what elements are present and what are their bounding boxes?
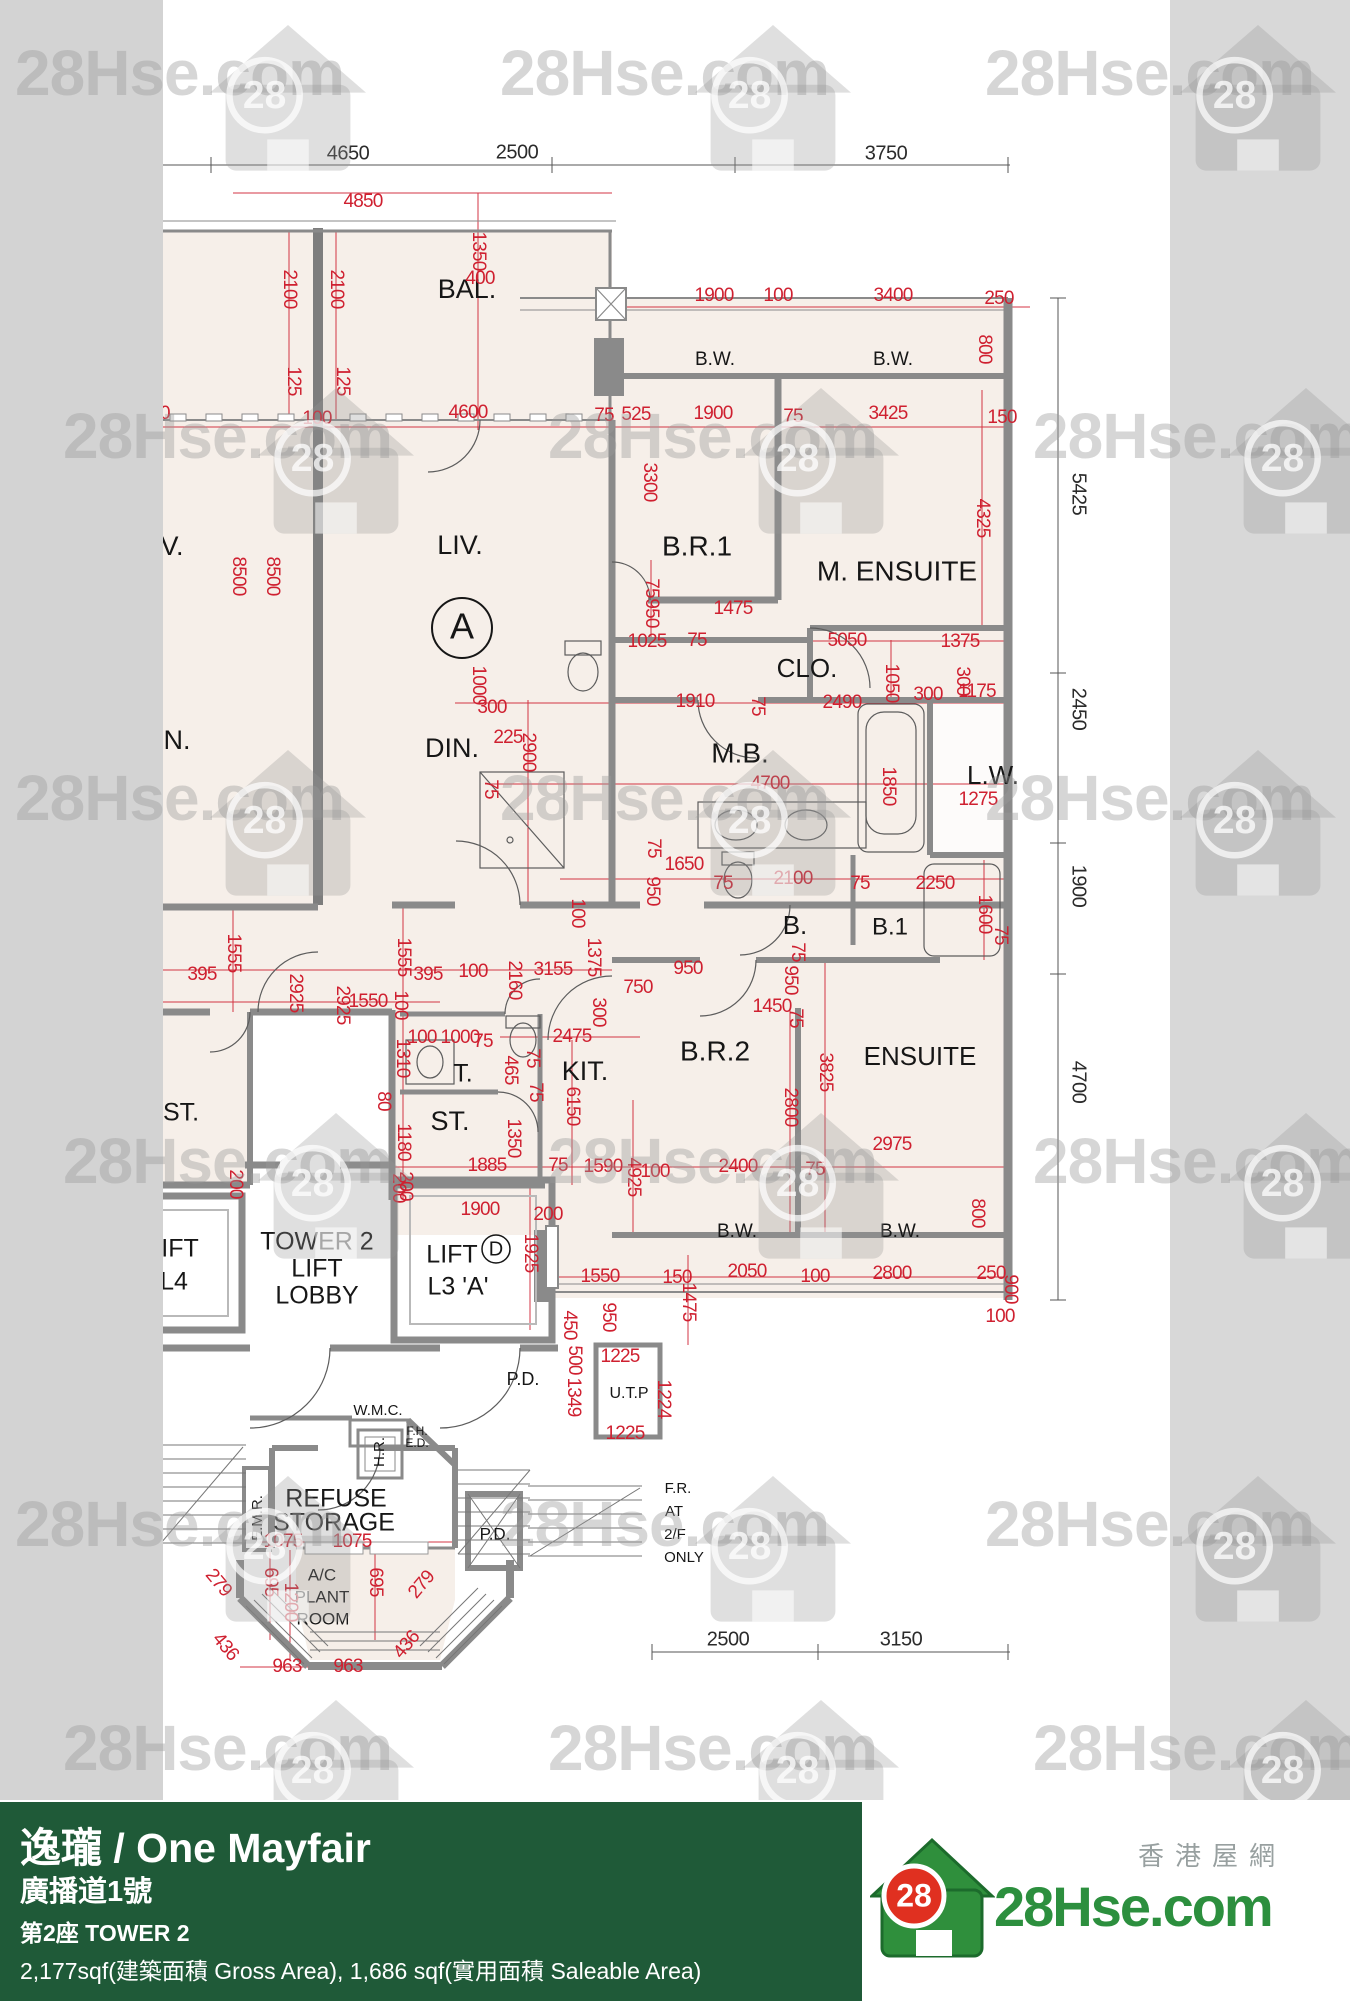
- dimension-label: 436: [208, 1629, 243, 1665]
- dimension-label: 395: [413, 964, 443, 985]
- watermark-badge: 28: [776, 1749, 819, 1792]
- dimension-label: 1910: [675, 691, 714, 712]
- overall-dimension-label: 3750: [865, 142, 908, 164]
- overall-dimension-label: 1900: [1068, 865, 1090, 908]
- dimension-label: 200: [533, 1204, 563, 1225]
- room-label: B.1: [872, 913, 908, 940]
- dimension-label: 1225: [605, 1423, 644, 1444]
- estate-address: 廣播道1號: [20, 1868, 152, 1910]
- dimension-label: 1555: [223, 933, 244, 972]
- room-label: B.W.: [880, 1221, 920, 1242]
- watermark-badge: 28: [1213, 74, 1256, 117]
- dimension-label: 1025: [627, 631, 666, 652]
- dimension-label: 80: [373, 1091, 394, 1111]
- dimension-label: 2050: [727, 1261, 766, 1282]
- dimension-label: 2100: [326, 269, 347, 308]
- dimension-label: 8500: [228, 556, 249, 595]
- room-label: L3 'A': [428, 1273, 489, 1301]
- dimension-label: 395: [187, 964, 217, 985]
- dimension-label: 250: [984, 288, 1014, 309]
- overall-dimension-label: 2500: [707, 1628, 750, 1650]
- watermark-badge: 28: [1261, 1749, 1304, 1792]
- dimension-label: 75: [473, 1031, 493, 1052]
- watermark-badge: 28: [776, 437, 819, 480]
- room-label: B.W.: [717, 1221, 757, 1242]
- watermark-badge: 28: [243, 74, 286, 117]
- dimension-label: 3825: [815, 1052, 836, 1091]
- dimension-label: 75: [747, 696, 768, 716]
- dimension-label: 2800: [872, 1263, 911, 1284]
- dimension-label: 2475: [552, 1026, 591, 1047]
- unit-letter: A: [450, 606, 474, 647]
- dimension-label: 100: [390, 990, 411, 1020]
- dimension-label: 1225: [600, 1346, 639, 1367]
- room-label: ENSUITE: [864, 1041, 977, 1071]
- dimension-label: 2800: [780, 1087, 801, 1126]
- room-label: W.M.C.: [353, 1402, 402, 1419]
- dimension-label: 900: [1000, 1274, 1021, 1304]
- room-label: T.: [453, 1060, 472, 1088]
- watermark-badge: 28: [243, 1525, 286, 1568]
- area-info: 2,177sqf(建築面積 Gross Area), 1,686 sqf(實用面…: [20, 1952, 701, 1986]
- 28hse-logo-icon: 28: [870, 1834, 995, 1964]
- dimension-label: 1175: [958, 681, 996, 702]
- dimension-label: 1550: [348, 991, 387, 1012]
- room-label: LIFT: [291, 1255, 342, 1283]
- footer-info-bar: 逸瓏 / One Mayfair 廣播道1號 第2座 TOWER 2 2,177…: [0, 1802, 862, 2001]
- watermark-badge: 28: [728, 1525, 771, 1568]
- room-label: KIT.: [562, 1056, 609, 1086]
- watermark-badge: 28: [291, 1749, 334, 1792]
- dimension-label: 950: [642, 876, 663, 906]
- dimension-label: 75: [525, 1082, 546, 1102]
- dimension-label: 1475: [713, 598, 752, 619]
- dimension-label: 950: [598, 1302, 619, 1332]
- dimension-label: 1349: [563, 1377, 584, 1416]
- room-label: B.: [783, 910, 808, 940]
- overall-dimension-label: 5425: [1068, 473, 1090, 516]
- room-label: ST.: [430, 1106, 469, 1136]
- room-label: E.D.: [405, 1436, 428, 1450]
- room-label: B.W.: [873, 349, 913, 370]
- dimension-label: 75: [850, 873, 870, 894]
- dimension-label: 75: [643, 838, 664, 858]
- dimension-label: 500: [564, 1345, 585, 1375]
- dimension-label: 100: [985, 1306, 1015, 1327]
- dimension-label: 75: [480, 779, 501, 799]
- footer: 逸瓏 / One Mayfair 廣播道1號 第2座 TOWER 2 2,177…: [0, 1800, 1350, 2001]
- dimension-label: 4600: [448, 402, 487, 423]
- overall-dimension-label: 2450: [1068, 688, 1090, 731]
- dimension-label: 100: [763, 285, 793, 306]
- dimension-label: 1310: [392, 1038, 413, 1077]
- dimension-label: 1050: [881, 663, 902, 702]
- dimension-label: 2160: [504, 960, 525, 999]
- dimension-label: 1555: [393, 937, 414, 976]
- dimension-label: 100: [458, 961, 488, 982]
- page: 50465025003750542524501900470025003150 B…: [0, 0, 1350, 2001]
- tower-label: 第2座 TOWER 2: [20, 1914, 190, 1948]
- overall-dimension-label: 2500: [496, 141, 539, 163]
- dimension-label: 75: [687, 630, 707, 651]
- watermark-badge: 28: [1213, 799, 1256, 842]
- dimension-label: 2250: [915, 873, 954, 894]
- room-label: M. ENSUITE: [817, 555, 977, 586]
- dimension-label: 4850: [343, 191, 382, 212]
- watermark-badge: 28: [1213, 1525, 1256, 1568]
- dimension-label: 695: [365, 1567, 386, 1597]
- dimension-label: 1224: [653, 1379, 674, 1419]
- dimension-label: 1925: [520, 1233, 541, 1272]
- watermark-badge: 28: [1261, 1162, 1304, 1205]
- dimension-label: 75: [990, 925, 1011, 945]
- room-label: P.D.: [507, 1369, 540, 1389]
- dimension-label: 963: [272, 1656, 302, 1677]
- logo-badge: 28: [896, 1877, 932, 1913]
- estate-title: 逸瓏 / One Mayfair: [20, 1814, 371, 1874]
- dimension-label: 300: [477, 697, 507, 718]
- room-label: DIN.: [425, 733, 479, 763]
- dimension-label: 75: [785, 1008, 806, 1028]
- watermark-badge: 28: [776, 1162, 819, 1205]
- room-label: V.: [160, 531, 183, 561]
- dimension-label: 75: [522, 1048, 543, 1068]
- dimension-label: 465: [500, 1055, 521, 1085]
- floor-plan: 50465025003750542524501900470025003150 B…: [0, 0, 1350, 1800]
- room-label: N.: [164, 725, 191, 755]
- dimension-label: 1375: [940, 631, 979, 652]
- dimension-label: 1350: [468, 231, 489, 270]
- dimension-label: 1550: [580, 1266, 619, 1287]
- dimension-label: 3400: [873, 285, 912, 306]
- dimension-label: 963: [333, 1656, 363, 1677]
- dimension-label: 2925: [285, 973, 306, 1012]
- room-label: H.R.: [371, 1437, 388, 1467]
- watermark-badge: 28: [1261, 437, 1304, 480]
- dimension-label: 750: [623, 977, 653, 998]
- unit-letter: D: [489, 1238, 503, 1260]
- dimension-label: 450: [559, 1310, 580, 1340]
- dimension-label: 300: [588, 997, 609, 1027]
- dimension-label: 3155: [533, 959, 572, 980]
- dimension-label: 75: [787, 942, 808, 962]
- dimension-label: 8500: [262, 556, 283, 595]
- overall-dimension-label: 3150: [880, 1628, 923, 1650]
- dimension-label: 400: [465, 268, 495, 289]
- dimension-label: 75: [641, 578, 662, 598]
- room-label: ST.: [163, 1099, 199, 1127]
- dimension-label: 100: [567, 898, 588, 928]
- dimension-label: 1850: [878, 766, 899, 805]
- room-label: LIFT: [426, 1241, 477, 1269]
- watermark-badge: 28: [291, 1162, 334, 1205]
- dimension-label: 1350: [503, 1118, 524, 1157]
- dimension-label: 950: [780, 965, 801, 995]
- room-label: U.T.P: [609, 1385, 648, 1402]
- dimension-label: 2490: [822, 692, 861, 713]
- overall-dimension-label: 4700: [1068, 1061, 1090, 1104]
- room-label: B.R.2: [680, 1035, 750, 1066]
- site-tagline: 香港屋網: [1138, 1836, 1286, 1873]
- dimension-label: 800: [967, 1198, 988, 1228]
- dimension-label: 1375: [583, 937, 604, 976]
- dimension-label: 300: [913, 684, 943, 705]
- dimension-label: 2100: [279, 269, 300, 308]
- room-label: LOBBY: [275, 1282, 359, 1310]
- dimension-label: 1180: [393, 1123, 414, 1161]
- dimension-label: 6150: [562, 1086, 583, 1125]
- dimension-label: 950: [673, 958, 703, 979]
- watermark-badge: 28: [291, 437, 334, 480]
- watermark-badge: 28: [728, 799, 771, 842]
- room-label: L4: [160, 1268, 188, 1296]
- site-brand[interactable]: 香港屋網 28 28Hse.com: [862, 1802, 1350, 2001]
- dimension-label: 2975: [872, 1134, 911, 1155]
- dimension-label: 1885: [467, 1155, 506, 1176]
- dimension-label: 100: [800, 1266, 830, 1287]
- dimension-label: 150: [987, 407, 1017, 428]
- dimension-label: 1650: [664, 854, 703, 875]
- dimension-label: 5050: [827, 630, 866, 651]
- dimension-label: 1475: [678, 1282, 699, 1321]
- room-label: IFT: [161, 1235, 199, 1263]
- room-label: B.W.: [695, 349, 735, 370]
- dimension-label: 4325: [972, 498, 993, 537]
- dimension-label: 1900: [694, 285, 733, 306]
- dimension-label: 800: [974, 334, 995, 364]
- dimension-label: 950: [641, 598, 662, 628]
- dimension-label: 125: [283, 366, 304, 396]
- dimension-label: 1900: [460, 1199, 499, 1220]
- watermark-badge: 28: [243, 799, 286, 842]
- room-label: B.R.1: [662, 530, 732, 561]
- room-label: LIV.: [437, 530, 483, 560]
- watermark-badge: 28: [728, 74, 771, 117]
- site-name: 28Hse.com: [994, 1874, 1272, 1939]
- room-label: CLO.: [777, 653, 838, 683]
